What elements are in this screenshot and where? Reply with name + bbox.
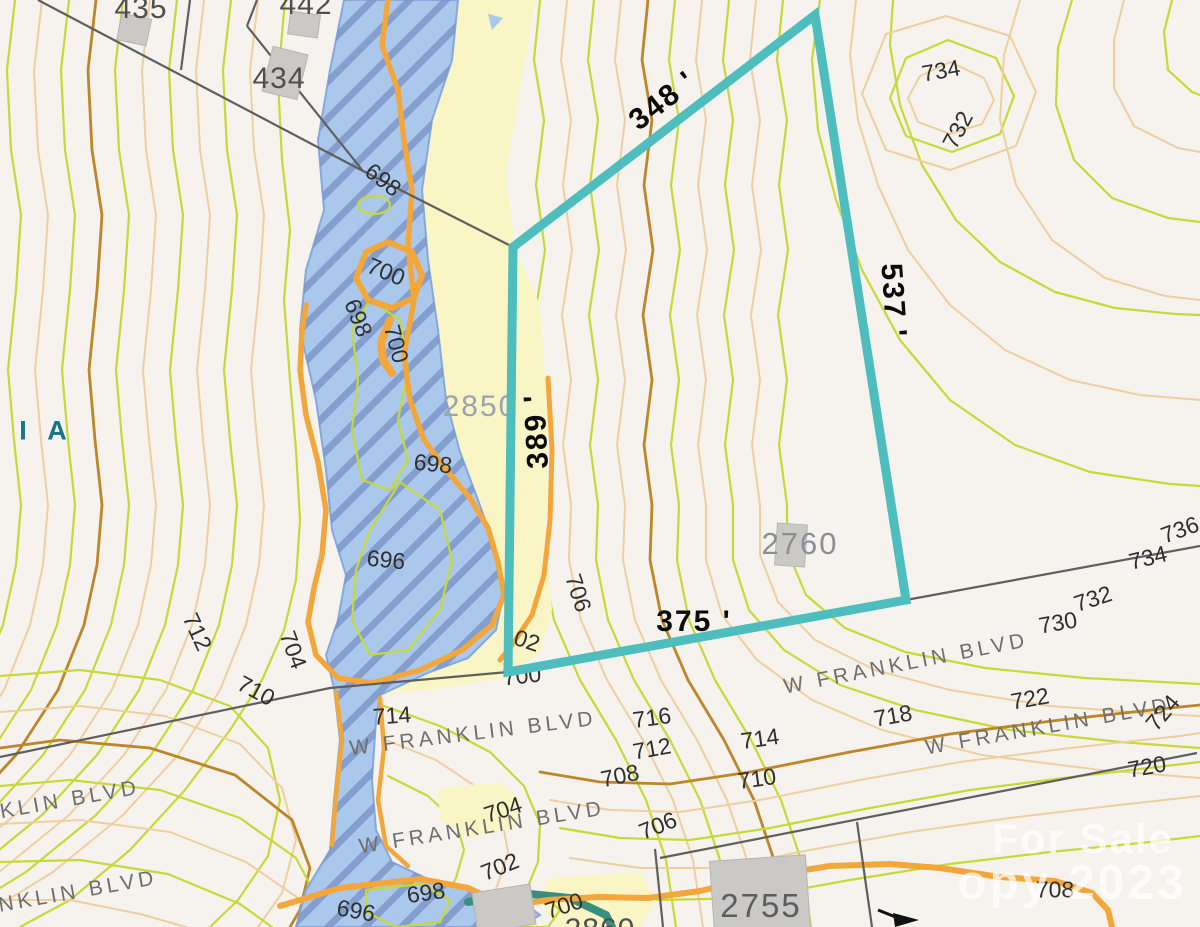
- parcel-lines: [0, 0, 1200, 927]
- boundary-length-bottom: 375 ': [656, 605, 732, 639]
- contour-label: 722: [1009, 682, 1051, 715]
- contour-label: 706: [635, 806, 681, 845]
- measurement-layer: 348 ' 537 ' 389 ' 375 ' For Sale opy 202…: [0, 0, 1200, 927]
- parcel-number-434: 434: [252, 62, 305, 96]
- contour-lines-bottom-left: [0, 670, 318, 927]
- contour-label: 710: [233, 670, 280, 712]
- contour-label: 712: [177, 609, 218, 655]
- flood-fringe-zone: [376, 0, 656, 927]
- contour-label: 720: [1126, 750, 1168, 783]
- contour-label: 734: [1126, 540, 1170, 575]
- map-canvas: [0, 0, 1200, 927]
- street-label-w-franklin-blvd-2: W FRANKLIN BLVD: [357, 797, 606, 860]
- parcel-number-442: 442: [279, 0, 332, 22]
- contour-label: 700: [378, 322, 414, 366]
- dark-teal-contour-bottom: [468, 893, 612, 927]
- contour-label: 698: [405, 877, 447, 909]
- contour-hill-top-right: [812, 0, 1200, 486]
- contour-label: 710: [736, 763, 778, 795]
- contour-label: 698: [338, 295, 377, 341]
- contour-lines-right: [534, 0, 1200, 927]
- boundary-length-top: 348 ': [623, 64, 703, 137]
- boundary-length-left: 389 ': [518, 392, 556, 469]
- contour-label: 696: [335, 894, 377, 927]
- parcel-number-2760: 2760: [762, 526, 839, 562]
- contour-label: 698: [413, 449, 454, 480]
- building-footprints: [117, 11, 811, 927]
- map-label-layer: I I A 435 442 434 2850 2760 2755 2860 W …: [0, 0, 1200, 927]
- contour-label: 698: [360, 158, 407, 203]
- map-arrow-marker: [878, 910, 919, 927]
- street-label-w-franklin-blvd-1: W FRANKLIN BLVD: [348, 707, 598, 761]
- contour-label: 704: [274, 627, 312, 672]
- contour-label: 732: [1071, 580, 1116, 618]
- contour-label: 714: [739, 723, 781, 755]
- contour-label: 716: [631, 702, 673, 734]
- contour-label: 732: [937, 107, 979, 154]
- contour-label: 714: [372, 701, 412, 731]
- parcel-number-2860: 2860: [565, 913, 636, 927]
- parcel-number-2850: 2850: [443, 390, 518, 424]
- parcel-boundary-overlay: [0, 0, 1200, 927]
- street-label-nklin-blvd: NKLIN BLVD: [0, 866, 159, 918]
- index-contours-orange: [280, 0, 1112, 927]
- contour-label: 708: [598, 759, 641, 793]
- contour-label: 700: [502, 661, 543, 692]
- contour-label: 718: [872, 699, 914, 732]
- floodway-zone: [296, 0, 540, 927]
- topo-parcel-map[interactable]: I I A 435 442 434 2850 2760 2755 2860 W …: [0, 0, 1200, 927]
- contour-label: 736: [1157, 511, 1200, 549]
- parcel-number-435: 435: [114, 0, 167, 26]
- contour-lines-left: [0, 0, 300, 927]
- contour-label: 704: [481, 791, 526, 829]
- contour-loops-floodway: [352, 196, 560, 927]
- boundary-length-right: 537 ': [873, 262, 912, 340]
- contour-label: 708: [1036, 877, 1074, 904]
- parcel-number-2755: 2755: [720, 887, 801, 925]
- watermark-line-1: For Sale: [992, 815, 1174, 863]
- contour-lines-bottom-right: [540, 705, 1200, 900]
- contour-label: 700: [363, 252, 409, 291]
- map-background: [0, 0, 1200, 927]
- contour-label: 730: [1037, 606, 1079, 639]
- contour-label: 706: [559, 571, 597, 616]
- contour-label: 734: [920, 54, 962, 87]
- contour-label: 702: [477, 847, 523, 886]
- contour-arcs-bottom-center: [384, 706, 540, 927]
- contour-label: 724: [1140, 690, 1185, 737]
- contour-label: 712: [631, 732, 673, 765]
- street-label-w-franklin-blvd-3: W FRANKLIN BLVD: [782, 628, 1031, 699]
- contour-label: 700: [542, 887, 587, 925]
- street-label-klin-blvd: KLIN BLVD: [0, 776, 142, 824]
- watermark-line-2: opy 2023: [957, 856, 1186, 911]
- contour-label: 696: [366, 545, 407, 576]
- region-name-label: I I A: [0, 416, 74, 447]
- contour-label: 02: [511, 624, 544, 658]
- parcel-boundary-polygon: [508, 15, 906, 672]
- street-label-w-franklin-blvd-4: W FRANKLIN BLVD: [923, 694, 1172, 761]
